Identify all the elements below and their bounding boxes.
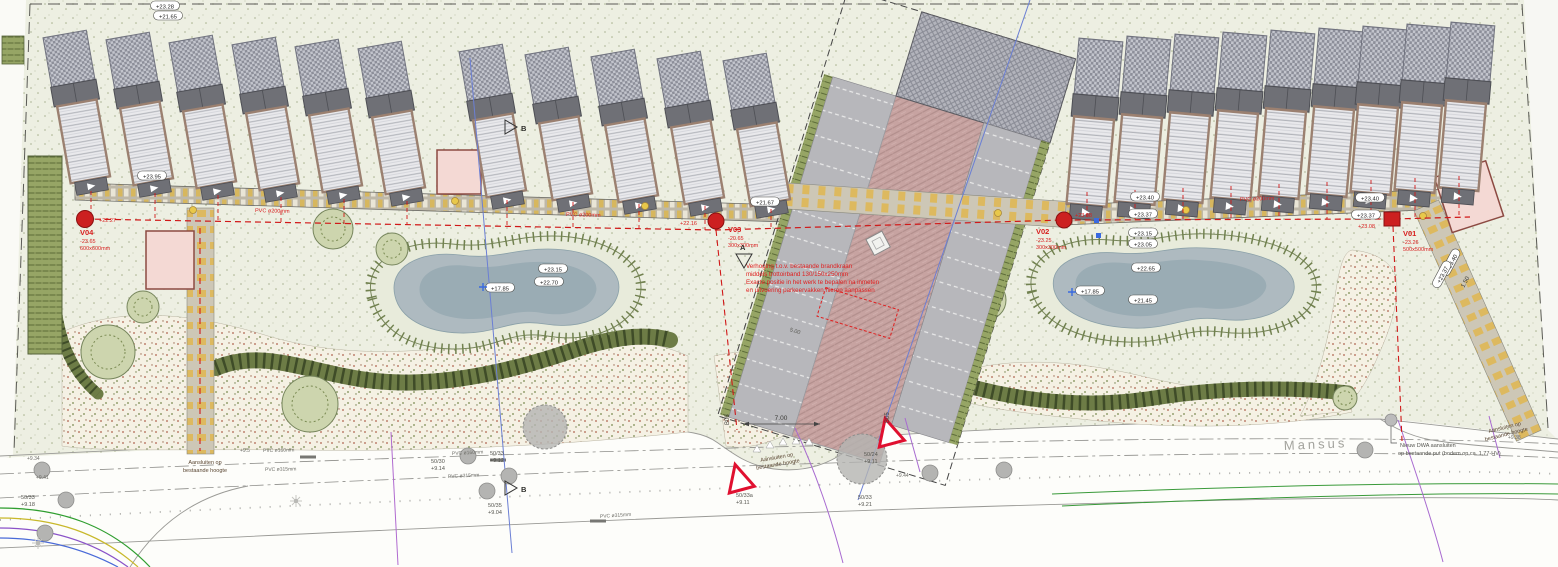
- svg-text:+23.37: +23.37: [1357, 214, 1375, 220]
- tree: [127, 291, 159, 323]
- svg-text:+23.15: +23.15: [1134, 232, 1152, 238]
- utility-building: [146, 231, 194, 289]
- svg-text:A: A: [740, 243, 746, 252]
- svg-text:+22.65: +22.65: [1137, 267, 1155, 273]
- svg-text:+23.05: +23.05: [1134, 243, 1152, 249]
- svg-text:Nieuw DWA aansluiten: Nieuw DWA aansluiten: [1400, 443, 1456, 449]
- tree: [282, 376, 338, 432]
- svg-text:+9.14: +9.14: [431, 466, 445, 472]
- svg-text:+23.40: +23.40: [1136, 196, 1154, 202]
- water-marker: [1094, 218, 1099, 223]
- existing-manhole: [1385, 414, 1397, 426]
- drain-pipe-label: PVC ø200mm: [1240, 196, 1275, 203]
- svg-text:+9.18: +9.18: [21, 502, 35, 508]
- pit-level: -23.25: [1036, 238, 1052, 244]
- site-plan-sheet: 5.00 5.00: [0, 0, 1558, 567]
- svg-text:+9.04: +9.04: [488, 510, 502, 516]
- spot-level: +9.38: [1508, 435, 1521, 441]
- pit-surface: +23.08: [1075, 213, 1092, 219]
- svg-text:+23.28: +23.28: [156, 5, 174, 11]
- spot-level: +9.41: [36, 475, 49, 481]
- svg-text:+17.85: +17.85: [1081, 290, 1099, 296]
- level-pill: +21.65: [154, 11, 183, 21]
- svg-text:50/33: 50/33: [858, 495, 872, 501]
- spot-level: +9.5: [240, 448, 250, 454]
- road-pipe-label: PVC ø315mm: [265, 466, 297, 473]
- svg-text:op bestaande put (bodem op ca.: op bestaande put (bodem op ca. 1,77-HV): [1398, 451, 1501, 457]
- tree-label: 50/30+9.14: [431, 459, 445, 472]
- red-note-line: en uitvoering parkeervakken hierop aanpa…: [746, 287, 875, 294]
- pond-left: [370, 236, 641, 349]
- tree: [376, 233, 408, 265]
- drain-pipe-label: PVC ø200mm: [566, 212, 601, 219]
- svg-text:50/33a: 50/33a: [736, 493, 754, 499]
- utility-building: [437, 150, 481, 194]
- svg-text:50/24: 50/24: [864, 452, 878, 458]
- level-pill: +23.40: [1131, 192, 1160, 202]
- water-marker: [1096, 233, 1101, 238]
- svg-text:+9.21: +9.21: [858, 502, 872, 508]
- pit-level: -23.26: [1403, 240, 1419, 246]
- pit-size: 300x300mm: [1036, 245, 1067, 251]
- level-pill: +23.15: [539, 264, 568, 274]
- spot-level: +9.34: [27, 456, 40, 462]
- tree: [1333, 386, 1357, 410]
- svg-text:+23.40: +23.40: [1361, 197, 1379, 203]
- level-pill: +23.28: [151, 1, 180, 11]
- level-pill: +21.67: [751, 197, 780, 207]
- inspection-pit-v02: [1056, 212, 1072, 228]
- pit-id: V02: [1036, 227, 1049, 236]
- level-pill: +22.70: [535, 277, 564, 287]
- tree-label: 50/35+9.04: [488, 503, 502, 516]
- level-pill: +23.40: [1356, 193, 1385, 203]
- pit-surface: +22.16: [680, 221, 697, 227]
- svg-text:+17.85: +17.85: [491, 287, 509, 293]
- inspection-pit-v01: [1384, 212, 1400, 226]
- svg-text:+9.12: +9.12: [490, 458, 504, 464]
- spot-level: +9.44: [896, 473, 909, 479]
- svg-text:+23.15: +23.15: [544, 268, 562, 274]
- green-strip-left: [28, 156, 62, 354]
- level-pill: +23.37: [1352, 210, 1381, 220]
- red-note-line: Exacte positie in het werk te bepalen na…: [746, 279, 880, 286]
- svg-text:+21.67: +21.67: [756, 201, 774, 207]
- red-note-line: Verhoging t.o.v. bestaande brandkraan: [746, 263, 853, 270]
- lamppost-id: B05: [885, 412, 891, 423]
- tree-label: 50/24+9.11: [864, 452, 878, 465]
- pit-surface: +22.27: [99, 218, 116, 224]
- red-note-line: middels trottoirband 130/150x250mm: [746, 271, 848, 278]
- svg-text:Aansluiten op: Aansluiten op: [188, 460, 221, 466]
- svg-text:+23.95: +23.95: [143, 175, 161, 181]
- svg-text:+21.45: +21.45: [1134, 299, 1152, 305]
- svg-text:bestaande hoogte: bestaande hoogte: [183, 468, 227, 474]
- svg-text:50/30: 50/30: [431, 459, 445, 465]
- svg-text:+22.70: +22.70: [540, 281, 558, 287]
- site-plan-drawing: 5.00 5.00: [0, 0, 1558, 567]
- level-pill: +23.15: [1129, 228, 1158, 238]
- lamppost-id: B06: [725, 414, 731, 425]
- tree-label: 50/33+9.21: [858, 495, 872, 508]
- level-pill: +23.95: [138, 171, 167, 181]
- level-pill: +22.65: [1132, 263, 1161, 273]
- level-pill: +23.37: [1129, 209, 1158, 219]
- road-pipe-label: PVC ø160mm: [263, 447, 295, 454]
- pit-size: 500x500mm: [1403, 247, 1434, 253]
- inspection-pit-v03: [708, 213, 724, 229]
- green-strip-corner: [2, 36, 24, 64]
- tree-label: 50/33+9.12: [490, 451, 504, 464]
- pit-id: V01: [1403, 229, 1416, 238]
- svg-text:+23.37: +23.37: [1134, 213, 1152, 219]
- pond-right: [1031, 234, 1317, 342]
- pit-id: V03: [728, 225, 741, 234]
- pit-surface: +23.08: [1358, 224, 1375, 230]
- pit-size: 600x600mm: [80, 246, 111, 252]
- street-name: Mansus: [1283, 435, 1347, 453]
- svg-text:B: B: [521, 485, 527, 494]
- svg-text:+9.11: +9.11: [864, 459, 878, 465]
- svg-text:50/33: 50/33: [21, 495, 35, 501]
- pit-level: -23.65: [80, 239, 96, 245]
- svg-text:+21.65: +21.65: [159, 15, 177, 21]
- svg-text:+9.11: +9.11: [736, 500, 750, 506]
- tree-label: 50/33+9.18: [21, 495, 35, 508]
- drain-pipe-label: PVC ø200mm: [255, 208, 290, 215]
- buildings-row-3: [1062, 30, 1316, 222]
- pit-level: -20.65: [728, 236, 744, 242]
- inspection-pit-v04: [77, 211, 94, 228]
- level-pill: +17.85: [1076, 286, 1105, 296]
- tree: [81, 325, 135, 379]
- level-pill: +17.85: [486, 283, 515, 293]
- tree: [313, 209, 353, 249]
- svg-text:50/33: 50/33: [490, 451, 504, 457]
- level-pill: +23.05: [1129, 239, 1158, 249]
- svg-text:7.00: 7.00: [775, 415, 788, 422]
- pit-id: V04: [80, 228, 94, 237]
- svg-text:B: B: [521, 124, 527, 133]
- svg-text:50/35: 50/35: [488, 503, 502, 509]
- level-pill: +21.45: [1129, 295, 1158, 305]
